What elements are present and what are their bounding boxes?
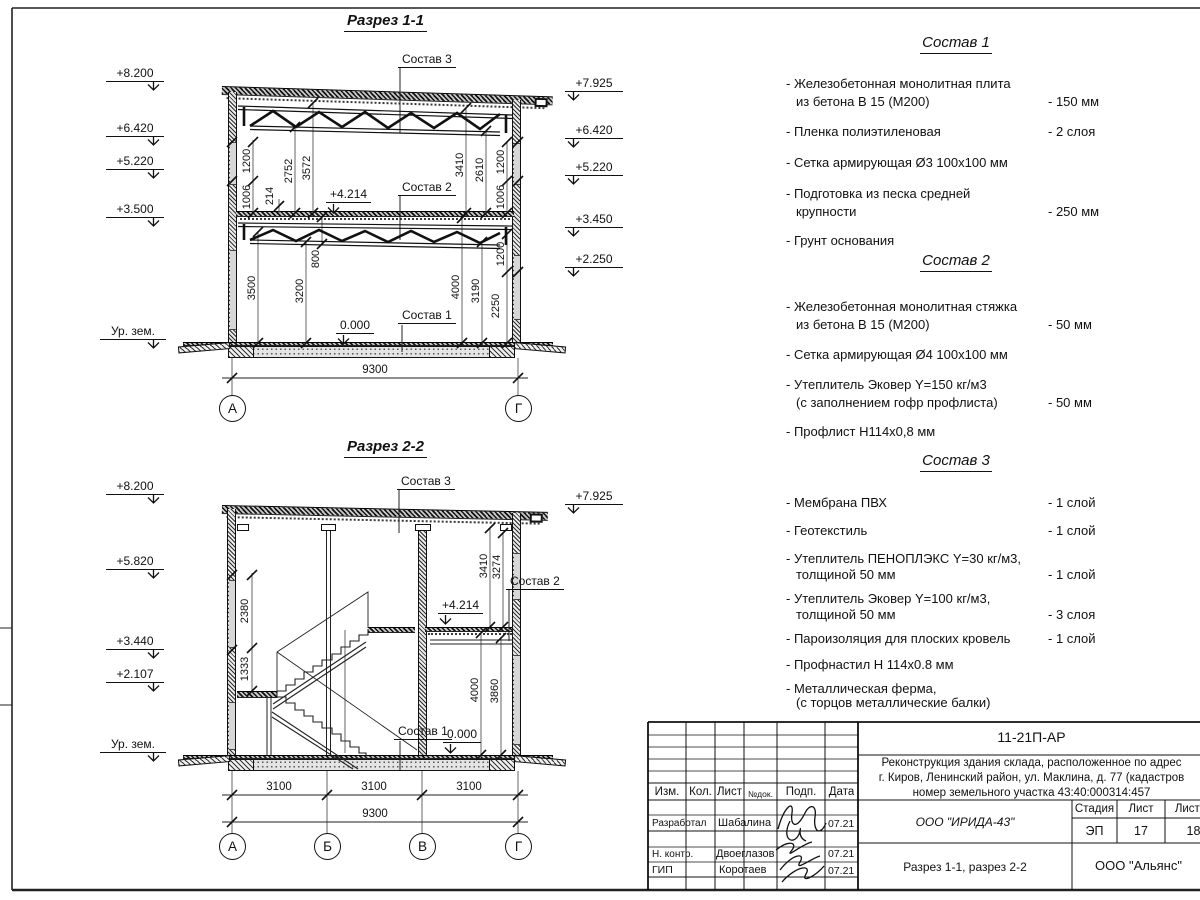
dim-label: 2752: [283, 159, 295, 183]
elevation-value: +3.450: [565, 212, 623, 228]
list-item: - Железобетонная монолитная плита: [786, 76, 1011, 91]
s1-level-mid-arrow-icon: [327, 204, 340, 214]
elevation-mark: +7.925: [565, 489, 623, 505]
project-desc-line3: номер земельного участка 43:40:000314:45…: [858, 787, 1200, 799]
dim-label: 1200: [241, 149, 253, 173]
ground-level-mark: Ур. зем.: [100, 737, 166, 753]
dim-label: 3100: [262, 781, 296, 793]
stage-value: ЭП: [1072, 824, 1117, 838]
sheets-header: Листов: [1165, 803, 1200, 815]
axis-bubble: Г: [505, 395, 532, 422]
s2-level-mid-label: +4.214: [438, 598, 483, 614]
elevation-value: +2.250: [565, 252, 623, 268]
dim-label: 1200: [495, 242, 507, 266]
elevation-arrow-icon: [147, 339, 160, 349]
list-item-value: - 250 мм: [1048, 204, 1099, 219]
axis-letter: Б: [323, 839, 332, 854]
axis-bubble: В: [409, 833, 436, 860]
elevation-value: +6.420: [565, 123, 623, 139]
axis-letter: Г: [515, 839, 522, 854]
s2-level-zero-arrow-icon: [444, 744, 457, 754]
list-title: Состав 3: [770, 452, 1142, 470]
elevation-value: +3.440: [106, 634, 164, 650]
dim-label: 3100: [357, 781, 391, 793]
list-item: - Мембрана ПВХ: [786, 495, 887, 510]
elevation-arrow-icon: [147, 136, 160, 146]
elevation-mark: +8.200: [106, 479, 164, 495]
company-name: ООО "Альянс": [1072, 858, 1200, 873]
elevation-arrow-icon: [567, 138, 580, 148]
elevation-mark: +6.420: [565, 123, 623, 139]
name-developed: Шабалина: [718, 817, 771, 829]
stage-header: Стадия: [1072, 803, 1117, 815]
s1-truss-upper: [236, 102, 514, 142]
axis-letter: А: [228, 839, 237, 854]
list-item: - Пленка полиэтиленовая: [786, 124, 941, 139]
list-item: - Утеплитель ПЕНОПЛЭКС Y=30 кг/м3,: [786, 551, 1021, 566]
elevation-mark: +3.440: [106, 634, 164, 650]
list-item: - Металлическая ферма,: [786, 681, 936, 696]
list-item: - Утеплитель Эковер Y=150 кг/м3: [786, 377, 987, 392]
drawing-sheet: { "s1": { "title": "Разрез 1-1", "elev_l…: [0, 0, 1200, 900]
sheet-value: 17: [1117, 824, 1165, 838]
dim-label: 3410: [478, 554, 490, 578]
elevation-mark: +5.820: [106, 554, 164, 570]
list-item-line2: (с торцов металлические балки): [796, 695, 991, 710]
s2-level-zero-label: 0.000: [443, 727, 481, 743]
role-ncontrol: Н. контр.: [652, 849, 693, 860]
s1-level-mid-label: +4.214: [326, 187, 371, 203]
doc-number: 11-21П-АР: [858, 729, 1200, 745]
sostav1-list: Состав 1 - Железобетонная монолитная пли…: [770, 28, 1142, 248]
dim-label: 3860: [489, 679, 501, 703]
s1-title: Разрез 1-1: [344, 12, 427, 32]
list-item: - Сетка армирующая Ø3 100х100 мм: [786, 155, 1008, 170]
s2-sostav3-label: Состав 3: [397, 474, 455, 490]
list-item: - Сетка армирующая Ø4 100х100 мм: [786, 347, 1008, 362]
list-title-text: Состав 3: [920, 452, 992, 472]
elevation-value: +5.220: [106, 154, 164, 170]
ground-level-mark: Ур. зем.: [100, 324, 166, 340]
list-item-line2: из бетона В 15 (М200): [796, 94, 930, 109]
col-header-kol: Кол.: [686, 786, 715, 798]
list-title: Состав 1: [770, 34, 1142, 52]
elevation-arrow-icon: [147, 569, 160, 579]
s1-sostav2-label: Состав 2: [398, 180, 456, 196]
sheets-value: 18: [1165, 824, 1200, 838]
sostav3-list: Состав 3 - Мембрана ПВХ - 1 слой - Геоте…: [770, 449, 1142, 709]
list-item-value: - 3 слоя: [1048, 607, 1095, 622]
elevation-value: +7.925: [565, 76, 623, 92]
list-title: Состав 2: [770, 252, 1142, 270]
elevation-mark: +5.220: [565, 160, 623, 176]
list-item-value: - 50 мм: [1048, 395, 1092, 410]
axis-letter: Г: [515, 401, 522, 416]
list-item-line2: крупности: [796, 204, 856, 219]
list-item-value: - 1 слой: [1048, 523, 1096, 538]
list-title-text: Состав 1: [920, 34, 992, 54]
elevation-value: +6.420: [106, 121, 164, 137]
dim-label: 1006: [241, 185, 253, 209]
elevation-arrow-icon: [147, 494, 160, 504]
axis-letter: В: [418, 839, 427, 854]
elevation-arrow-icon: [567, 91, 580, 101]
elevation-arrow-icon: [147, 81, 160, 91]
elevation-mark: +3.500: [106, 202, 164, 218]
elevation-mark: +6.420: [106, 121, 164, 137]
col-header-izm: Изм.: [648, 786, 686, 798]
elevation-value: +8.200: [106, 66, 164, 82]
dim-label: 3100: [452, 781, 486, 793]
list-item: - Подготовка из песка средней: [786, 186, 970, 201]
s1-level-zero-label: 0.000: [336, 318, 374, 334]
sheet-title: Разрез 1-1, разрез 2-2: [858, 860, 1072, 874]
list-item: - Утеплитель Эковер Y=100 кг/м3,: [786, 591, 990, 606]
dim-label: 4000: [450, 275, 462, 299]
ground-level-label: Ур. зем.: [100, 324, 166, 340]
date-developed: 07.21: [828, 818, 854, 830]
date-gip: 07.21: [828, 865, 854, 877]
list-item: - Пароизоляция для плоских кровель: [786, 631, 1010, 646]
elevation-mark: +8.200: [106, 66, 164, 82]
s2-staircase: [236, 585, 426, 775]
dim-label: 3410: [454, 153, 466, 177]
dim-total-label: 9300: [358, 364, 392, 376]
list-item-value: - 2 слоя: [1048, 124, 1095, 139]
s1-truss-lower: [236, 220, 514, 256]
elevation-arrow-icon: [147, 217, 160, 227]
list-item-line2: толщиной 50 мм: [796, 567, 896, 582]
dim-total-label: 9300: [358, 808, 392, 820]
dim-label: 800: [310, 250, 322, 268]
axis-bubble: Б: [314, 833, 341, 860]
dim-label: 2250: [490, 294, 502, 318]
elevation-arrow-icon: [147, 169, 160, 179]
dim-label: 2610: [474, 158, 486, 182]
list-item: - Профнастил Н 114х0.8 мм: [786, 657, 954, 672]
date-ncontrol: 07.21: [828, 848, 854, 860]
project-desc-line2: г. Киров, Ленинский район, ул. Маклина, …: [858, 772, 1200, 784]
list-item-line2: (с заполнением гофр профлиста): [796, 395, 998, 410]
dim-label: 3572: [301, 156, 313, 180]
design-org: ООО "ИРИДА-43": [858, 815, 1072, 829]
elevation-arrow-icon: [147, 752, 160, 762]
s1-sostav1-label: Состав 1: [398, 308, 456, 324]
name-gip: Коротаев: [719, 864, 767, 876]
elevation-mark: +2.250: [565, 252, 623, 268]
col-header-list: Лист: [715, 786, 744, 798]
elevation-value: +2.107: [106, 667, 164, 683]
dim-label: 1200: [495, 150, 507, 174]
elevation-arrow-icon: [567, 504, 580, 514]
axis-bubble: А: [219, 395, 246, 422]
s2-title: Разрез 2-2: [344, 438, 427, 458]
list-title-text: Состав 2: [920, 252, 992, 272]
dim-label: 4000: [469, 678, 481, 702]
s1-sostav3-label: Состав 3: [398, 52, 456, 68]
list-item: - Профлист Н114х0,8 мм: [786, 424, 935, 439]
elevation-value: +7.925: [565, 489, 623, 505]
elevation-value: +5.820: [106, 554, 164, 570]
s2-sostav2-label: Состав 2: [506, 574, 564, 590]
list-item-line2: из бетона В 15 (М200): [796, 317, 930, 332]
elevation-mark: +5.220: [106, 154, 164, 170]
role-developed: Разработал: [652, 818, 706, 829]
project-desc-line1: Реконструкция здания склада, расположенн…: [858, 757, 1200, 769]
dim-label: 1006: [495, 185, 507, 209]
list-item-value: - 1 слой: [1048, 567, 1096, 582]
signature: [772, 836, 828, 888]
axis-letter: А: [228, 401, 237, 416]
elevation-arrow-icon: [567, 267, 580, 277]
list-item: - Геотекстиль: [786, 523, 867, 538]
s1-level-zero-arrow-icon: [337, 335, 350, 345]
elevation-arrow-icon: [567, 175, 580, 185]
role-gip: ГИП: [652, 864, 673, 876]
elevation-value: +8.200: [106, 479, 164, 495]
dim-label: 3200: [294, 279, 306, 303]
list-item-value: - 1 слой: [1048, 495, 1096, 510]
list-item-value: - 150 мм: [1048, 94, 1099, 109]
axis-bubble: Г: [505, 833, 532, 860]
name-ncontrol: Двоеглазов: [716, 848, 774, 860]
dim-label: 3500: [246, 276, 258, 300]
axis-bubble: А: [219, 833, 246, 860]
elevation-arrow-icon: [567, 227, 580, 237]
list-item: - Грунт основания: [786, 233, 894, 248]
dim-label: 3274: [491, 555, 503, 579]
dim-label: 2380: [239, 599, 251, 623]
list-item-line2: толщиной 50 мм: [796, 607, 896, 622]
elevation-value: +3.500: [106, 202, 164, 218]
elevation-mark: +3.450: [565, 212, 623, 228]
list-item-value: - 1 слой: [1048, 631, 1096, 646]
list-item-value: - 50 мм: [1048, 317, 1092, 332]
ground-level-label: Ур. зем.: [100, 737, 166, 753]
sostav2-list: Состав 2 - Железобетонная монолитная стя…: [770, 252, 1142, 442]
dim-label: 3190: [470, 279, 482, 303]
list-item: - Железобетонная монолитная стяжка: [786, 299, 1017, 314]
sheet-header: Лист: [1117, 803, 1165, 815]
elevation-value: +5.220: [565, 160, 623, 176]
elevation-mark: +2.107: [106, 667, 164, 683]
elevation-arrow-icon: [147, 682, 160, 692]
dim-label: 1333: [239, 657, 251, 681]
elevation-mark: +7.925: [565, 76, 623, 92]
dim-label: 214: [264, 187, 276, 205]
s2-level-mid-arrow-icon: [439, 615, 452, 625]
elevation-arrow-icon: [147, 649, 160, 659]
